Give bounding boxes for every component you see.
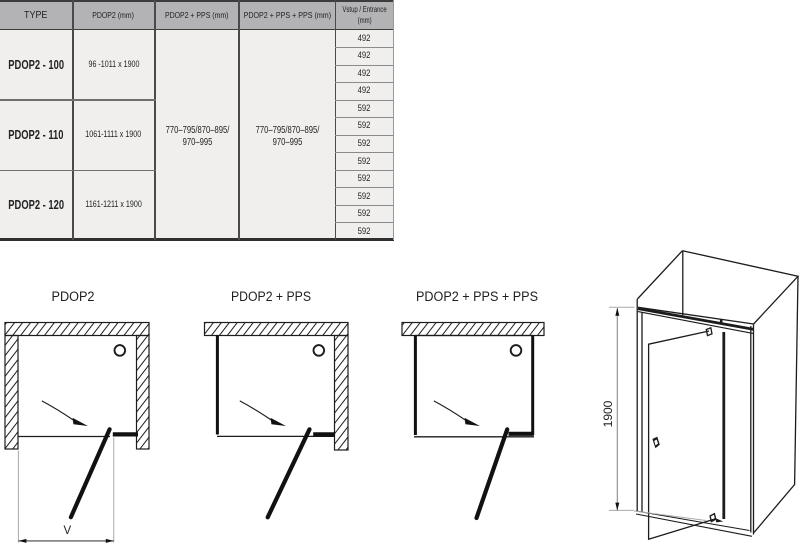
svg-text:PDOP2 + PPS + PPS: PDOP2 + PPS + PPS <box>416 289 538 305</box>
svg-text:V: V <box>63 525 71 537</box>
svg-text:1900: 1900 <box>601 400 615 427</box>
svg-text:PDOP2 + PPS: PDOP2 + PPS <box>231 289 311 305</box>
svg-text:PDOP2: PDOP2 <box>52 289 95 305</box>
